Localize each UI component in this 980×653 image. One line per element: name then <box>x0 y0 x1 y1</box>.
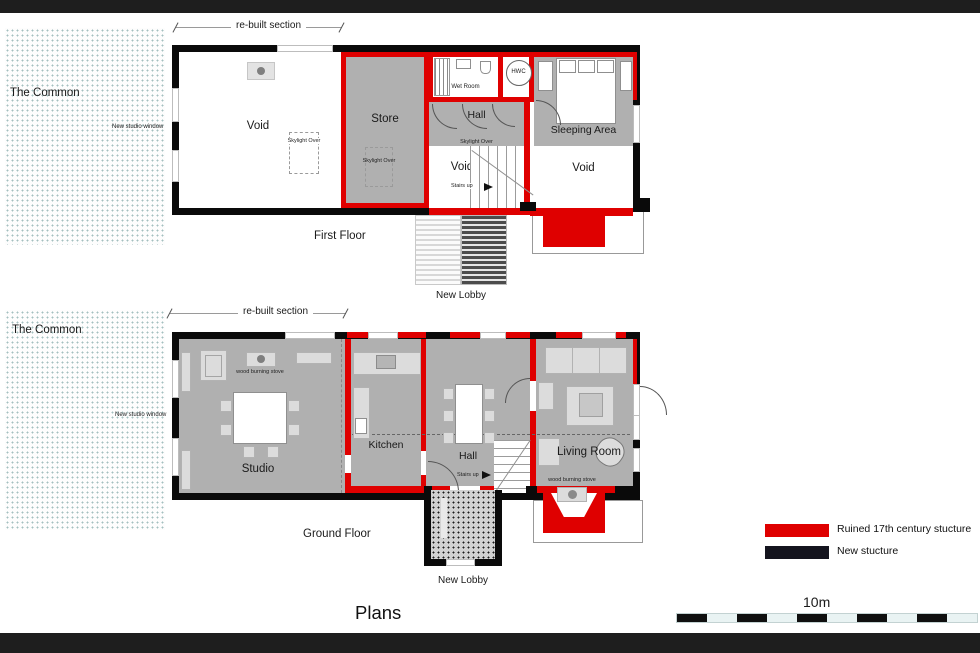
legend-label-ruined: Ruined 17th century stucture <box>837 524 971 536</box>
nightstand-left <box>538 61 553 91</box>
living-room-label: Living Room <box>539 446 639 459</box>
void-right-label: Void <box>534 162 633 175</box>
skylight-label-void-ff: Skylight Over <box>272 138 336 144</box>
skylight-label-store: Skylight Over <box>347 158 411 164</box>
legend-swatch-ruined <box>765 524 829 537</box>
scale-segment <box>797 614 827 622</box>
hall-chair-2 <box>443 410 454 422</box>
plan-sheet: The Common New studio window re-built se… <box>0 0 980 653</box>
ruined-top-seg-6 <box>616 332 626 338</box>
store-label: Store <box>341 113 429 126</box>
hwc-label: HWC <box>506 69 531 76</box>
window-gf-top-4 <box>582 332 616 339</box>
hall-chair-1 <box>443 388 454 400</box>
scale-segment <box>677 614 707 622</box>
stairs-arrow-gf <box>482 471 491 479</box>
living-wall-joint <box>615 486 633 493</box>
window-gf-top-3 <box>480 332 506 339</box>
studio-radiator-1 <box>181 352 191 392</box>
room-void-right-ff <box>534 146 633 208</box>
window-gf-top-2 <box>368 332 398 339</box>
toilet-icon <box>480 61 491 74</box>
wood-stove-label-studio: wood burning stove <box>225 369 295 375</box>
studio-stove-circle <box>257 355 265 363</box>
kitchen-hob <box>376 355 396 369</box>
hall-chair-3 <box>443 432 454 444</box>
window-gf-left-2 <box>172 438 179 476</box>
sleeping-area-label: Sleeping Area <box>534 125 633 137</box>
studio-armchair-cushion <box>205 355 222 377</box>
hall-table <box>455 384 483 444</box>
ruined-top-seg-1 <box>347 332 368 338</box>
scale-bar <box>676 613 978 623</box>
studio-chair-2 <box>220 424 232 436</box>
bed-pillow-3 <box>597 60 614 73</box>
common-area-ground-floor <box>5 310 165 530</box>
lobby-roof-right <box>461 215 507 285</box>
scale-segment <box>857 614 887 622</box>
scale-segment <box>887 614 917 622</box>
window-ff-left-1 <box>172 88 179 122</box>
first-floor-title: First Floor <box>314 230 366 243</box>
scale-segment <box>767 614 797 622</box>
bottom-frame-bar <box>0 633 980 653</box>
ruined-top-seg-3 <box>450 332 480 338</box>
ground-floor-title: Ground Floor <box>303 528 371 541</box>
stairs-arrow-ff <box>484 183 493 191</box>
ruin-stub-left-ff <box>520 202 536 211</box>
studio-chair-6 <box>267 446 279 458</box>
new-lobby-label-ff: New Lobby <box>415 290 507 301</box>
ruined-top-seg-5 <box>556 332 582 338</box>
window-ff-left-2 <box>172 150 179 182</box>
scale-segment <box>947 614 977 622</box>
section-dash-studio <box>341 339 342 493</box>
common-label-gf: The Common <box>12 324 82 337</box>
lobby-front-door-gap <box>446 559 475 566</box>
window-ff-top <box>277 45 333 52</box>
studio-chair-1 <box>220 400 232 412</box>
stairs-up-label-ff: Stairs up <box>450 183 474 189</box>
ruin-stub-right-ff <box>633 198 650 212</box>
studio-chair-3 <box>288 400 300 412</box>
wet-room-label: Wet Room <box>433 84 498 91</box>
door-arc-living-exterior <box>640 386 667 415</box>
stove-flue-circle-ff <box>257 67 265 75</box>
common-area-first-floor <box>5 28 165 245</box>
studio-label: Studio <box>208 463 308 476</box>
new-studio-window-label-gf: New studio window <box>115 412 166 419</box>
rebuilt-section-label-gf: re-built section <box>238 306 313 317</box>
nightstand-right <box>620 61 632 91</box>
legend-label-new: New stucture <box>837 546 898 558</box>
bed-pillow-2 <box>578 60 595 73</box>
void-large-label: Void <box>213 120 303 133</box>
ruin-body-ff <box>543 210 605 247</box>
bed-pillow-1 <box>559 60 576 73</box>
studio-radiator-2 <box>181 450 191 490</box>
window-gf-top-1 <box>285 332 335 339</box>
sink-icon <box>456 59 471 69</box>
legend-swatch-new <box>765 546 829 559</box>
studio-chair-4 <box>288 424 300 436</box>
studio-table <box>233 392 287 444</box>
hall-chair-5 <box>484 410 495 422</box>
studio-chair-5 <box>243 446 255 458</box>
living-coffee-table-inner <box>579 393 603 417</box>
ruined-wall-ff-right <box>633 52 637 100</box>
hall-ff-label: Hall <box>429 110 524 122</box>
kitchen-sink <box>355 418 367 434</box>
common-label-ff: The Common <box>10 87 80 100</box>
ruined-wall-gf-right <box>633 339 637 385</box>
scale-segment <box>827 614 857 622</box>
hall-chair-4 <box>484 388 495 400</box>
porch-stove-circle <box>568 490 577 499</box>
skylight-label-hall: Skylight Over <box>429 139 524 145</box>
living-sofa <box>545 347 627 374</box>
lobby-door-slot <box>441 498 447 538</box>
studio-bench <box>296 352 332 364</box>
rebuilt-section-label-ff: re-built section <box>231 20 306 31</box>
stairs-up-label-gf: Stairs up <box>456 472 480 478</box>
scale-segment <box>737 614 767 622</box>
living-side-table <box>538 382 554 410</box>
window-gf-left-1 <box>172 360 179 398</box>
ruined-wall-sleeping-top <box>534 52 633 57</box>
wood-stove-label-living: wood burning stove <box>532 477 612 483</box>
skylight-box-store <box>365 147 393 187</box>
ruined-top-seg-2 <box>398 332 426 338</box>
scale-label: 10m <box>803 595 830 610</box>
window-ff-right <box>633 105 640 143</box>
lobby-roof-left <box>415 215 461 285</box>
top-frame-bar <box>0 0 980 13</box>
scale-segment <box>707 614 737 622</box>
ruined-top-seg-4 <box>506 332 530 338</box>
scale-segment <box>917 614 947 622</box>
page-title: Plans <box>355 603 401 623</box>
ruin-stub-left-gf <box>526 486 537 497</box>
new-lobby-gf <box>424 490 502 566</box>
new-lobby-label-gf: New Lobby <box>424 575 502 586</box>
new-studio-window-label-ff: New studio window <box>112 124 163 131</box>
living-door-gap <box>633 384 640 416</box>
kitchen-label: Kitchen <box>351 440 421 452</box>
